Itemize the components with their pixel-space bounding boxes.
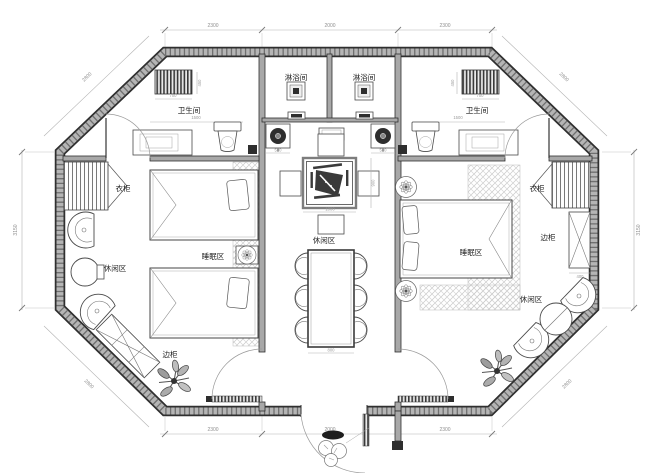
nightstand-flower-bottom xyxy=(396,281,417,302)
dim-bottom-right: 2300 xyxy=(439,427,450,433)
plant-left xyxy=(156,360,192,399)
tea-seat-top xyxy=(318,134,344,156)
washbasin-left: 500 xyxy=(266,124,290,153)
radiator-right xyxy=(462,70,499,94)
tea-table: 900 1000 xyxy=(280,134,379,234)
dim-diagonal-bl: 2800 xyxy=(83,378,95,390)
dim-toilet-right: 1500 xyxy=(453,115,463,120)
nightstand-flower-top xyxy=(396,177,417,198)
dim-radiator-right: 700 xyxy=(477,93,485,98)
label-side-cabinet-right: 边柜 xyxy=(541,232,556,242)
dim-diagonal-tr: 2800 xyxy=(558,71,570,83)
tea-seat-right xyxy=(358,171,379,196)
floor-plan-canvas: 2300 2000 2300 2300 2000 2300 3150 3150 … xyxy=(0,0,651,473)
bin-right xyxy=(398,145,407,154)
double-bed xyxy=(400,200,512,278)
label-wardrobe-left: 衣柜 xyxy=(116,183,131,193)
dim-radiator-right-depth: 450 xyxy=(450,79,455,87)
round-chair xyxy=(71,258,99,286)
vanity-right xyxy=(459,130,518,155)
label-leisure-left: 休闲区 xyxy=(104,263,127,273)
dim-basin-right: 500 xyxy=(380,148,388,153)
dim-basin-left: 500 xyxy=(275,148,283,153)
dim-left-side: 3150 xyxy=(13,224,19,235)
toilet-left xyxy=(214,122,241,152)
radiator-left xyxy=(155,70,192,94)
vanity-left xyxy=(133,130,192,155)
dining-table: 800 xyxy=(295,250,367,353)
dim-tea-table-depth: 900 xyxy=(371,179,376,187)
washbasin-right: 500 xyxy=(371,124,395,153)
dim-top-left: 2300 xyxy=(207,23,218,29)
floor-plan-page: 2300 2000 2300 2300 2000 2300 3150 3150 … xyxy=(0,0,651,473)
dim-bottom-left: 2300 xyxy=(207,427,218,433)
pillow xyxy=(226,277,249,309)
side-cabinet-right: 400 xyxy=(569,212,590,279)
dim-toilet-left: 1500 xyxy=(191,115,201,120)
dim-diagonal-br: 2800 xyxy=(561,378,573,390)
armchairs-right xyxy=(512,276,603,365)
label-wardrobe-right: 衣柜 xyxy=(530,183,545,193)
entrance-opening xyxy=(301,404,367,419)
dim-diagonal-tl: 2800 xyxy=(81,71,93,83)
label-side-cabinet-left: 边柜 xyxy=(163,349,178,359)
dim-right-side: 3150 xyxy=(636,224,642,235)
label-shower-left: 淋浴间 xyxy=(285,72,308,82)
tea-seat-bottom xyxy=(318,215,344,234)
plant-right xyxy=(479,350,515,389)
label-bathroom-left: 卫生间 xyxy=(178,105,201,115)
dim-radiator-left: 700 xyxy=(170,93,178,98)
label-leisure-center: 休闲区 xyxy=(313,235,336,245)
label-leisure-right: 休闲区 xyxy=(520,294,543,304)
nightstand-left xyxy=(236,246,258,264)
dim-top-right: 2300 xyxy=(439,23,450,29)
pillow xyxy=(226,179,249,211)
dim-dining-table: 800 xyxy=(328,348,336,353)
label-sleeping-left: 睡眠区 xyxy=(202,252,225,261)
label-sleeping-right: 睡眠区 xyxy=(460,248,483,257)
dim-radiator-left-depth: 450 xyxy=(197,79,202,87)
dim-top-center: 2000 xyxy=(324,23,335,29)
bed-left-1 xyxy=(150,170,258,240)
pillow xyxy=(402,241,419,270)
bedroom-door-left xyxy=(206,349,262,402)
bed-left-2 xyxy=(150,268,258,338)
shower-room-left: 淋浴间 xyxy=(285,72,308,119)
shower-room-right: 淋浴间 xyxy=(353,72,376,119)
label-bathroom-right: 卫生间 xyxy=(466,105,489,115)
pillow xyxy=(402,205,419,234)
tea-seat-left xyxy=(280,171,301,196)
bedroom-left: 睡眠区 衣柜 休闲区 边柜 xyxy=(64,162,258,398)
dim-tea-table-width: 1000 xyxy=(325,207,335,212)
toilet-right xyxy=(412,122,439,152)
label-shower-right: 淋浴间 xyxy=(353,72,376,82)
exterior-column xyxy=(395,411,401,441)
bin-left xyxy=(248,145,257,154)
bedroom-door-right xyxy=(398,349,454,402)
